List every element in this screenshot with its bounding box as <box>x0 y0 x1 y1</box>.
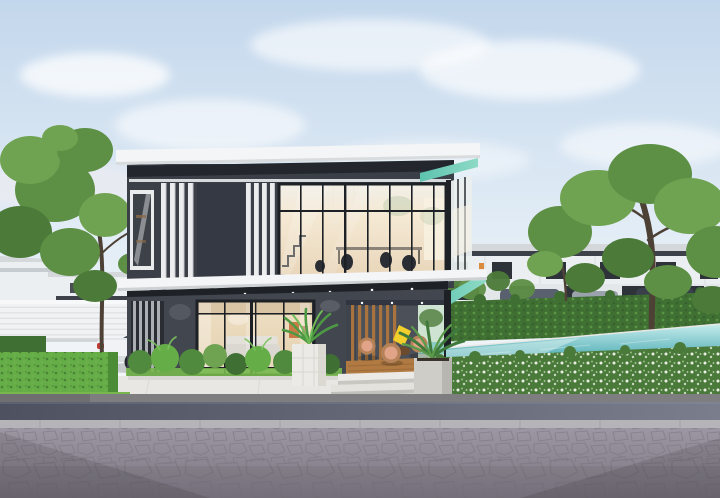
street <box>0 394 720 498</box>
rendering-svg <box>0 0 720 498</box>
upper-left-window <box>130 190 154 270</box>
corner-glass <box>451 175 472 277</box>
desk <box>336 247 422 250</box>
curb <box>0 394 720 402</box>
glass-curtain-wall <box>279 180 451 278</box>
asphalt-gutter <box>0 402 720 420</box>
architectural-rendering <box>0 0 720 498</box>
